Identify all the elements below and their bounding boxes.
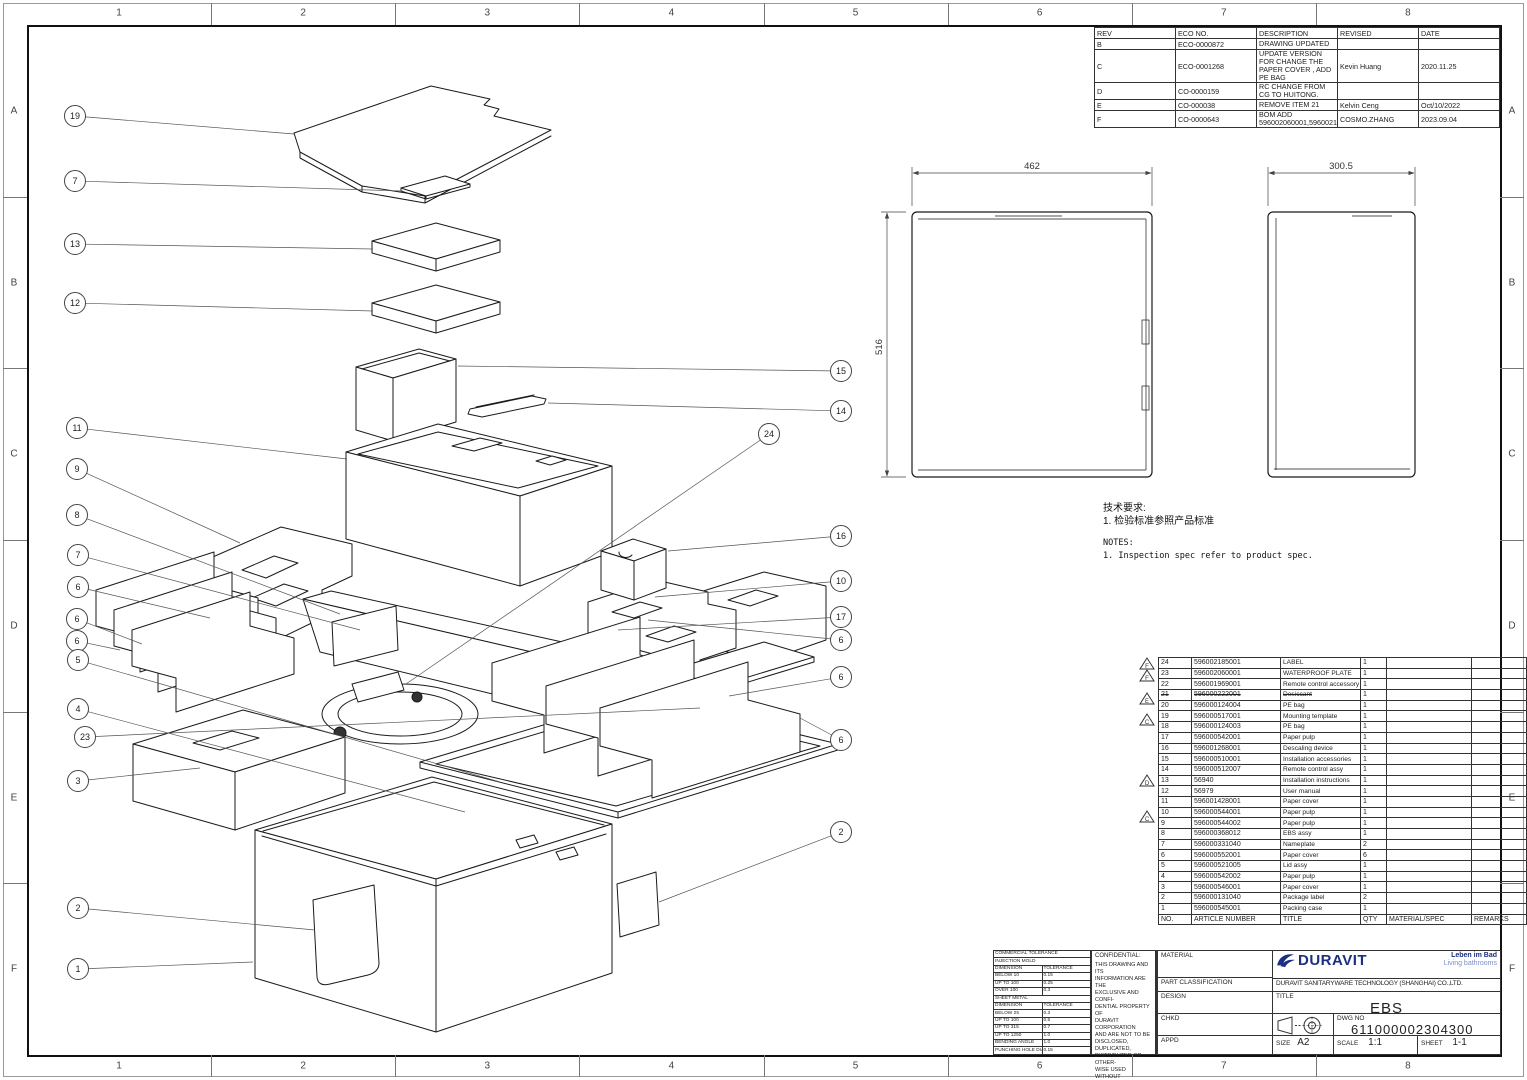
revision-header-row: REVECO NO.DESCRIPTIONREVISEDDATE [1095,28,1500,39]
bom-row: 18596000124003PE bag1 [1159,722,1527,733]
bom-row: 3596000546001Paper cover1 [1159,882,1527,893]
part-classification-label: PART CLASSIFICATION [1157,977,1273,992]
tolerance-row: PUNCHING HOLE DIA0.15 [994,1047,1091,1055]
dim-front-width: 462 [1024,161,1040,172]
confidential-note: CONFIDENTIAL: THIS DRAWING AND ITSINFORM… [1091,950,1156,1055]
balloon-leader [659,836,831,902]
bom-row: 17596000542001Paper pulp1 [1159,732,1527,743]
balloon-number: 15 [836,366,846,376]
balloon-leader [86,303,374,311]
notes-block: 技术要求: 1. 检验标准参照产品标准 NOTES: 1. Inspection… [1103,502,1383,563]
confidential-line: WISE USED WITHOUT [1095,1067,1152,1080]
orthographic-views [912,212,1415,477]
balloon-number: 2 [838,827,843,837]
package-label2-shape [617,872,659,937]
bom-row: 21596000222001Desiccant1 [1159,690,1527,701]
bom-revision-marker: C [1139,713,1155,726]
balloon-leader [668,537,831,551]
bom-row: 1256979User manual1 [1159,786,1527,797]
balloon-number: 6 [75,582,80,592]
revision-row: ECO-000038REMOVE ITEM 21Kelvin CengOct/1… [1095,100,1500,111]
revision-row: FCO-0000643BOM ADD 596002060001,59600218… [1095,111,1500,128]
bom-revision-marker: F [1139,669,1155,682]
svg-text:C: C [1145,720,1150,726]
bom-header-row: NO.ARTICLE NUMBERTITLEQTYMATERIAL/SPECRE… [1159,914,1527,925]
bom-row: 24596002185001LABEL1 [1159,658,1527,669]
packing-case-shape [255,777,612,1032]
svg-text:F: F [1145,676,1149,682]
balloon-leader [800,718,832,735]
balloon-leader [87,473,240,543]
bom-row: 14596000512007Remote control assy1 [1159,764,1527,775]
appd-label: APPD [1157,1035,1273,1055]
bom-row: 10596000544001Paper pulp1 [1159,807,1527,818]
size-label: SIZE [1276,1040,1290,1047]
balloon-number: 24 [764,429,774,439]
chkd-label: CHKD [1157,1013,1273,1036]
balloon-number: 4 [75,704,80,714]
notes-cn-item: 1. 检验标准参照产品标准 [1103,515,1383,528]
confidential-line: DENTIAL PROPERTY OF [1095,1004,1152,1018]
balloon-number: 8 [74,510,79,520]
balloon-number: 19 [70,111,80,121]
bom-row: 5596000521005Lid assy1 [1159,861,1527,872]
tolerance-row: BELOW 250.3 [994,1010,1091,1017]
tolerance-table: COMMERCIAL TOLERANCEINJECTION MOLDDIMENS… [993,950,1091,1055]
confidential-line: EXCLUSIVE AND CONFI- [1095,990,1152,1004]
balloon-number: 7 [72,176,77,186]
balloon-number: 5 [75,655,80,665]
design-label: DESIGN [1157,991,1273,1014]
confidential-line: AND ARE NOT TO BE [1095,1032,1152,1039]
balloon-leader [87,429,347,459]
bom-revision-marker: D [1139,774,1155,787]
tolerance-row: BENDING ANGLE1.0 [994,1040,1091,1047]
balloon-number: 16 [836,531,846,541]
bom-row: 7596000331040Nameplate2 [1159,839,1527,850]
title-block: MATERIAL PART CLASSIFICATION DESIGN CHKD… [1156,950,1500,1055]
notes-en-title: NOTES: [1103,537,1383,550]
front-view-outline [912,212,1152,477]
confidential-line: INFORMATION ARE THE [1095,976,1152,990]
side-view-outline [1268,212,1415,477]
paper-cover-box-shape [346,424,612,586]
bom-row: 9596000544002Paper pulp1 [1159,818,1527,829]
confidential-line: DURAVIT CORPORATION [1095,1018,1152,1032]
bom-row: 1356940Installation instructions1 [1159,775,1527,786]
tolerance-row: UP TO 12501.0 [994,1032,1091,1039]
bom-row: 2596000131040Package label2 [1159,893,1527,904]
size-value: A2 [1297,1037,1309,1048]
balloon-leader [458,366,831,371]
user-manual-box-shape [372,285,500,333]
dwg-no-label: DWG NO [1337,1015,1364,1022]
balloon-number: 17 [836,612,846,622]
mounting-template-shape [294,86,551,196]
balloon-number: 11 [72,423,81,433]
bom-row: 1596000545001Packing case1 [1159,903,1527,914]
bom-row: 11596001428001Paper cover1 [1159,796,1527,807]
drawing-sheet: 1122334455667788AABBCCDDEEFF [0,0,1527,1080]
brand-tagline-1: Leben im Bad [1444,952,1497,960]
notes-cn-title: 技术要求: [1103,502,1383,515]
bom-row: 16596001268001Descaling device1 [1159,743,1527,754]
tolerance-row: BELOW 100.15 [994,973,1091,980]
balloon-number: 6 [74,614,79,624]
company-name: DURAVIT SANITARYWARE TECHNOLOGY (SHANGHA… [1272,978,1501,992]
bom-row: 8596000368012EBS assy1 [1159,829,1527,840]
balloon-leader [86,244,374,249]
revision-table: REVECO NO.DESCRIPTIONREVISEDDATEBECO-000… [1094,27,1500,128]
bom-revision-marker: C [1139,810,1155,823]
bom-table: 24596002185001LABEL123596002060001WATERP… [1158,657,1500,925]
confidential-line: DISTRIBUTED OR OTHER- [1095,1053,1152,1067]
tolerance-row: UP TO 1000.5 [994,1017,1091,1024]
svg-text:C: C [1145,817,1150,823]
balloon-number: 9 [74,464,79,474]
bom-row: 22596001969001Remote control accessory1 [1159,679,1527,690]
dimensions: 462 300.5 516 [874,161,1415,477]
bom-row: 19596000517001Mounting template1 [1159,711,1527,722]
tolerance-row: UP TO 1000.25 [994,980,1091,987]
tolerance-row: UP TO 3150.7 [994,1025,1091,1032]
revision-row: BECO-0000872DRAWING UPDATED [1095,39,1500,50]
balloon-number: 7 [75,550,80,560]
balloon-leader [89,962,254,969]
balloon-leader [86,117,295,134]
confidential-line: THIS DRAWING AND ITS [1095,962,1152,976]
bom-row: 20596000124004PE bag1 [1159,700,1527,711]
svg-text:E: E [1145,699,1149,705]
balloon-number: 12 [70,298,80,308]
sheet-value: 1-1 [1452,1037,1466,1048]
balloon-number: 14 [836,406,846,416]
scale-value: 1:1 [1368,1037,1382,1048]
duravit-logo: DURAVIT [1298,953,1367,968]
revision-row: DCO-0000159RC CHANGE FROM CG TO HUITONG. [1095,83,1500,100]
balloon-number: 23 [80,732,90,742]
balloon-number: 2 [75,903,80,913]
confidential-title: CONFIDENTIAL: [1095,953,1152,960]
tolerance-row: OVER 1000.3 [994,988,1091,995]
balloon-number: 6 [74,636,79,646]
bom-row: 4596000542002Paper pulp1 [1159,871,1527,882]
confidential-line: DISCLOSED, DUPLICATED, [1095,1039,1152,1053]
bom-row: 23596002060001WATERPROOF PLATE1 [1159,668,1527,679]
balloon-number: 13 [70,239,80,249]
material-label: MATERIAL [1157,950,1273,978]
sheet-label: SHEET [1421,1040,1443,1047]
revision-row: CECO-0001268UPDATE VERSION FOR CHANGE TH… [1095,50,1500,83]
package-label-shape [313,885,379,985]
balloon-number: 6 [838,672,843,682]
balloon-number: 6 [838,635,843,645]
bom-row: 15596000510001Installation accessories1 [1159,754,1527,765]
balloon-number: 3 [75,776,80,786]
duravit-bird-icon [1276,952,1296,968]
projection-symbol-icon [1276,1016,1330,1035]
scale-label: SCALE [1337,1040,1358,1047]
notes-en-item: 1. Inspection spec refer to product spec… [1103,550,1383,563]
svg-text:D: D [1145,781,1150,787]
title-label: TITLE [1276,993,1294,1000]
instructions-box-shape [372,223,500,271]
dim-side-width: 300.5 [1329,161,1353,172]
balloon-number: 10 [836,576,846,586]
brand-tagline-2: Living bathrooms [1444,960,1497,968]
balloon-leader [548,403,831,411]
balloon-number: 6 [838,735,843,745]
bom-row: 6596000552001Paper cover6 [1159,850,1527,861]
balloon-number: 1 [75,964,80,974]
bom-revision-marker: E [1139,692,1155,705]
dim-front-height: 516 [874,339,885,355]
descaling-box-shape [601,539,666,600]
